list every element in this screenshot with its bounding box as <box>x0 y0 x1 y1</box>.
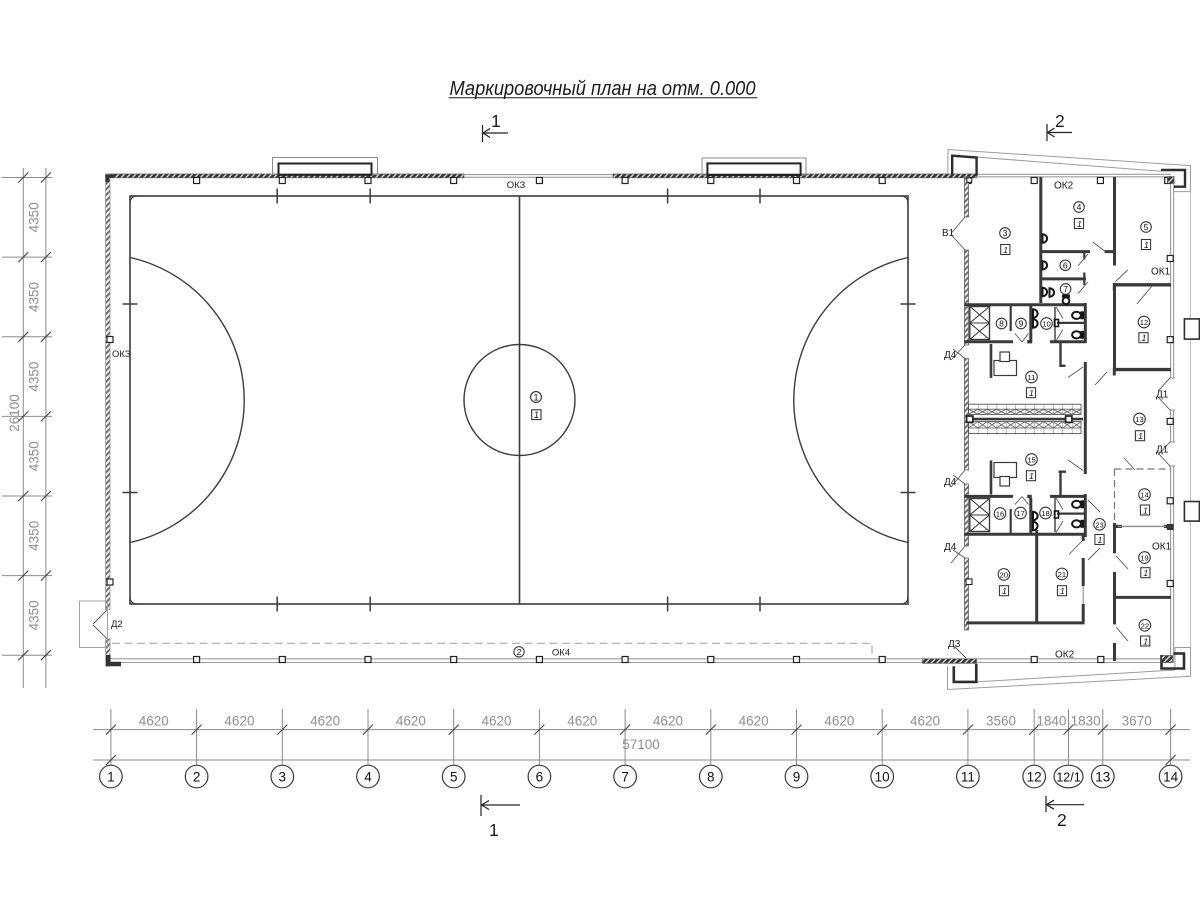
svg-text:1: 1 <box>1060 586 1065 596</box>
svg-text:ОК4: ОК4 <box>552 648 570 659</box>
svg-text:ОК1: ОК1 <box>1151 267 1171 278</box>
svg-text:22: 22 <box>1141 621 1149 630</box>
svg-text:20: 20 <box>1000 571 1008 580</box>
svg-text:1: 1 <box>491 111 501 131</box>
svg-text:ОК2: ОК2 <box>1055 650 1075 661</box>
svg-text:9: 9 <box>1019 319 1024 329</box>
svg-text:1: 1 <box>1029 471 1034 481</box>
svg-text:8: 8 <box>707 769 715 784</box>
svg-text:57100: 57100 <box>622 737 660 752</box>
svg-text:Д4: Д4 <box>944 542 957 553</box>
svg-text:Д3: Д3 <box>948 639 961 650</box>
svg-text:4620: 4620 <box>567 714 597 729</box>
svg-text:4620: 4620 <box>396 714 426 729</box>
svg-text:3670: 3670 <box>1122 714 1152 729</box>
svg-text:4620: 4620 <box>653 714 683 729</box>
svg-text:Д4: Д4 <box>944 350 957 361</box>
svg-text:21: 21 <box>1058 570 1066 579</box>
svg-text:1840: 1840 <box>1036 714 1066 729</box>
svg-text:26100: 26100 <box>7 394 22 432</box>
svg-text:4620: 4620 <box>482 714 512 729</box>
svg-text:4: 4 <box>1077 202 1082 212</box>
svg-text:1: 1 <box>1142 333 1147 343</box>
svg-text:5: 5 <box>450 769 458 784</box>
svg-text:ОК2: ОК2 <box>1054 181 1074 192</box>
svg-text:2: 2 <box>517 647 522 657</box>
svg-text:18: 18 <box>1041 509 1049 518</box>
svg-text:17: 17 <box>1016 509 1024 518</box>
svg-text:1: 1 <box>1002 586 1007 596</box>
svg-text:15: 15 <box>1027 456 1035 465</box>
svg-text:4620: 4620 <box>910 714 940 729</box>
svg-text:4620: 4620 <box>224 714 254 729</box>
svg-text:4620: 4620 <box>739 714 769 729</box>
svg-text:12: 12 <box>1140 318 1148 327</box>
svg-text:4350: 4350 <box>27 521 42 551</box>
svg-text:16: 16 <box>996 510 1004 519</box>
svg-text:1: 1 <box>1138 431 1143 441</box>
svg-text:6: 6 <box>1063 260 1068 270</box>
svg-text:5: 5 <box>1144 222 1149 232</box>
svg-text:1: 1 <box>107 769 115 784</box>
svg-text:1830: 1830 <box>1071 714 1101 729</box>
svg-text:4350: 4350 <box>27 362 42 392</box>
svg-text:4620: 4620 <box>310 714 340 729</box>
svg-text:4350: 4350 <box>27 202 42 232</box>
svg-text:7: 7 <box>621 769 629 784</box>
svg-text:1: 1 <box>1098 535 1103 545</box>
svg-text:4620: 4620 <box>139 714 169 729</box>
svg-text:10: 10 <box>875 769 890 784</box>
svg-text:3560: 3560 <box>986 714 1016 729</box>
svg-text:ОК1: ОК1 <box>1152 542 1172 553</box>
svg-text:1: 1 <box>1003 245 1008 255</box>
svg-text:19: 19 <box>1140 554 1148 563</box>
svg-text:1: 1 <box>1144 240 1149 250</box>
svg-text:23: 23 <box>1095 520 1103 529</box>
svg-text:1: 1 <box>1077 219 1082 229</box>
svg-text:6: 6 <box>536 769 544 784</box>
svg-text:1: 1 <box>1143 505 1148 515</box>
svg-text:В1: В1 <box>942 228 955 239</box>
svg-text:1: 1 <box>1143 636 1148 646</box>
svg-text:2: 2 <box>1057 810 1067 830</box>
svg-text:4620: 4620 <box>824 714 854 729</box>
svg-text:ОКЗ: ОКЗ <box>112 349 131 360</box>
svg-text:Маркировочный план на отм. 0.0: Маркировочный план на отм. 0.000 <box>450 77 757 100</box>
svg-text:14: 14 <box>1140 491 1148 500</box>
svg-text:4: 4 <box>364 769 372 784</box>
svg-text:13: 13 <box>1135 415 1143 424</box>
svg-text:12: 12 <box>1027 769 1042 784</box>
svg-text:9: 9 <box>793 769 801 784</box>
svg-text:4350: 4350 <box>27 282 42 312</box>
svg-text:2: 2 <box>193 769 201 784</box>
svg-text:Д4: Д4 <box>944 477 957 488</box>
svg-text:3: 3 <box>1003 228 1008 238</box>
svg-text:2: 2 <box>1055 111 1065 131</box>
svg-text:1: 1 <box>489 820 499 840</box>
svg-text:8: 8 <box>999 319 1004 329</box>
svg-text:13: 13 <box>1095 769 1110 784</box>
svg-text:1: 1 <box>533 392 538 402</box>
svg-text:1: 1 <box>1029 388 1034 398</box>
svg-text:14: 14 <box>1163 769 1179 784</box>
svg-text:1: 1 <box>534 410 539 420</box>
svg-text:Д2: Д2 <box>111 619 123 630</box>
svg-text:Д1: Д1 <box>1156 445 1169 456</box>
svg-text:1: 1 <box>1143 568 1148 578</box>
svg-text:10: 10 <box>1042 320 1050 329</box>
svg-text:7: 7 <box>1063 284 1068 294</box>
svg-text:11: 11 <box>1028 373 1036 382</box>
svg-text:11: 11 <box>961 769 975 784</box>
svg-text:ОКЗ: ОКЗ <box>507 180 526 191</box>
svg-text:4350: 4350 <box>27 441 42 471</box>
svg-text:Д1: Д1 <box>1156 390 1169 401</box>
svg-text:4350: 4350 <box>27 600 42 630</box>
svg-text:12/1: 12/1 <box>1056 770 1080 784</box>
svg-text:3: 3 <box>279 769 287 784</box>
